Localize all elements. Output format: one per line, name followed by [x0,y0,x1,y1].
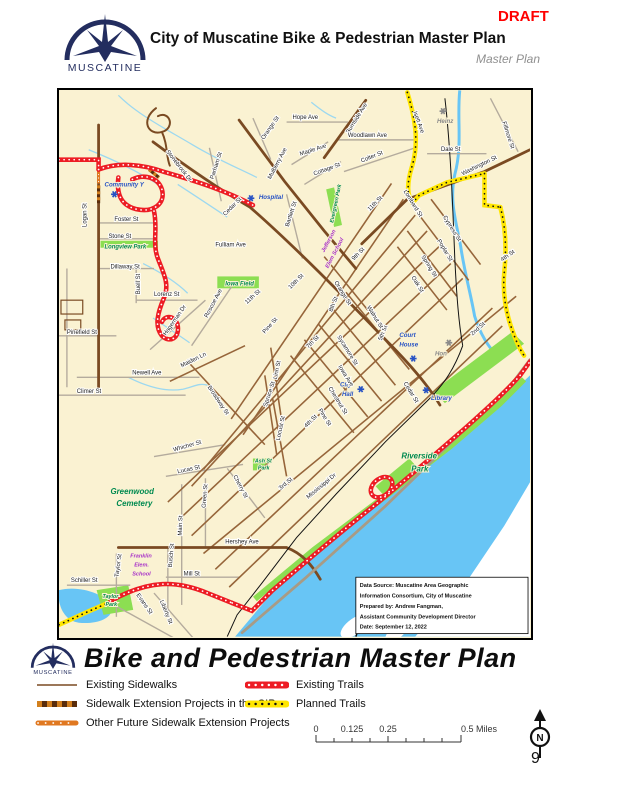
map-label: Hershey Ave [225,540,259,546]
map-label: Stone St [108,234,131,240]
map-label: Orange St [261,115,282,141]
legend-label: Existing Trails [296,679,364,691]
map-label: 11th St [367,195,384,212]
planned-trail-swatch [245,699,289,709]
legend-item-existing-trails: Existing Trails [245,679,366,691]
scale-tick-label: 0.5 Miles [461,724,498,734]
map-label: Newell Ave [132,370,162,376]
muscatine-logo: MUSCATINE [63,12,147,79]
map-title: Bike and Pedestrian Master Plan [84,643,517,674]
map-label: Fulliam Ave [215,243,246,249]
page-number: 9 [531,750,540,768]
map-label: Logan St [83,203,89,227]
map-label: 11th St [244,289,262,306]
map-label: Bartlett St [285,201,299,228]
existing-sidewalk-swatch [35,680,79,690]
poi-star-icon [445,340,452,346]
muscatine-logo-small: MUSCATINE [30,641,76,676]
map-label: Hon [435,351,447,358]
poi-star-icon [410,356,417,362]
map-label: Elem. [134,562,149,568]
map-label: Busch St [168,543,176,567]
map-label: Mill St [184,571,200,577]
map-label: 4th St [500,249,516,263]
map-label: Park [411,464,429,473]
map-label: Dillaway St [110,265,140,271]
credit-line: Prepared by: Andrew Fangman, [360,604,444,610]
map-label: Ash St [254,458,272,464]
scale-tick-label: 0 [313,724,318,734]
map-label: 10th St [288,273,306,291]
map-label: Maple Ave [299,143,328,157]
map-label: Broadway St [206,385,230,416]
map-label: Lorenz St [154,292,180,298]
map-label: 8th St [328,296,339,313]
scale-bar: 0 0.125 0.25 0.5 Miles [308,722,508,757]
map-label: Cemetery [116,499,153,508]
city-map: Stonebrook DrBurnside AveOrange StHope A… [57,88,533,640]
credit-line: Assistant Community Development Director [360,614,477,620]
map-label: Iowa Field [225,281,254,287]
logo-wordmark-small: MUSCATINE [33,670,72,676]
map-label: Park [258,465,271,471]
map-label: Cottage St [313,162,342,177]
scale-tick-label: 0.125 [341,724,364,734]
map-label: Fillmore St [500,121,515,150]
legend-right-column: Existing Trails Planned Trails [245,679,366,710]
map-label: Park [106,602,119,608]
scale-bar-ticks [316,735,461,742]
map-label: Community Y [105,181,145,188]
north-label: N [536,733,543,744]
map-label: Maiden Ln [180,352,207,370]
map-label: Hall [342,391,354,398]
logo-wordmark: MUSCATINE [68,62,143,74]
map-label: House [399,342,418,349]
legend-item-planned-trails: Planned Trails [245,698,366,710]
legend-label: Other Future Sidewalk Extension Projects [86,717,290,729]
map-label: Hospital [259,194,283,201]
map-label: Evans St [135,593,154,616]
map-label: 9th St [351,247,366,262]
map-label: Pinefield St [67,330,97,336]
map-label: Pine St [262,317,279,335]
cip-sidewalk-swatch [35,699,79,709]
credit-line: Data Source: Muscatine Area Geographic [360,583,469,589]
footer-title-row: MUSCATINE Bike and Pedestrian Master Pla… [30,641,517,676]
north-arrow-graphic: N [525,708,555,760]
map-label: Riverside [401,451,437,460]
map-label: Green St [201,484,209,508]
map-label: Library [431,395,452,402]
map-label: School [132,571,151,577]
existing-trail-swatch [245,680,289,690]
map-label: Pine St [317,408,332,428]
map-label: Locust St [276,415,287,441]
poi-star-icon [440,108,447,114]
scale-bar-graphic: 0 0.125 0.25 0.5 Miles [308,722,508,752]
poi-star-icon [357,386,364,392]
legend-item-future-sidewalks: Other Future Sidewalk Extension Projects [35,717,290,729]
map-label: Dale St [441,147,461,153]
scale-tick-label: 0.25 [379,724,397,734]
map-label: Foster St [114,217,138,223]
map-label: Taylor [103,594,120,600]
map-label: Franklin [130,553,152,559]
map-canvas: Stonebrook DrBurnside AveOrange StHope A… [59,90,530,637]
page-title: City of Muscatine Bike & Pedestrian Mast… [150,30,550,48]
map-label: Court [399,332,416,339]
map-label: Burnside Ave [346,102,370,135]
draft-watermark: DRAFT [498,8,549,25]
page-subtitle: Master Plan [150,52,540,66]
credit-line: Date: September 12, 2022 [360,625,427,631]
map-label: Buell St [136,273,142,294]
map-label: Main St [178,515,185,536]
credit-line: Information Consortium, City of Muscatin… [360,594,472,600]
map-label: Roscoe Ave [204,288,224,319]
map-label: Poplar St [435,239,453,263]
north-arrow: N [525,708,555,765]
muscatine-logo-icon: MUSCATINE [63,12,147,74]
legend-label: Existing Sidewalks [86,679,177,691]
map-label: Climer St [77,389,102,395]
map-label: Longview Park [105,245,148,251]
legend-label: Planned Trails [296,698,366,710]
map-credits: Data Source: Muscatine Area GeographicIn… [356,577,528,633]
map-label: Greenwood [110,487,154,496]
map-label: Cedar St [222,196,243,217]
map-label: 3rd St [278,477,294,492]
map-label: Mississippi Dr [306,473,338,501]
document-page: DRAFT MUSCATINE City of Muscatine Bike &… [0,0,618,800]
map-label: Heinz [437,118,454,125]
map-label: Hagerman Dr [163,304,188,337]
map-label: Hope Ave [293,115,319,121]
future-sidewalk-swatch [35,718,79,728]
map-label: Woodlawn Ave [348,133,388,139]
map-label: Cypress St [441,215,462,243]
map-label: Schiller St [71,578,98,584]
poi-star-icon [248,195,255,201]
